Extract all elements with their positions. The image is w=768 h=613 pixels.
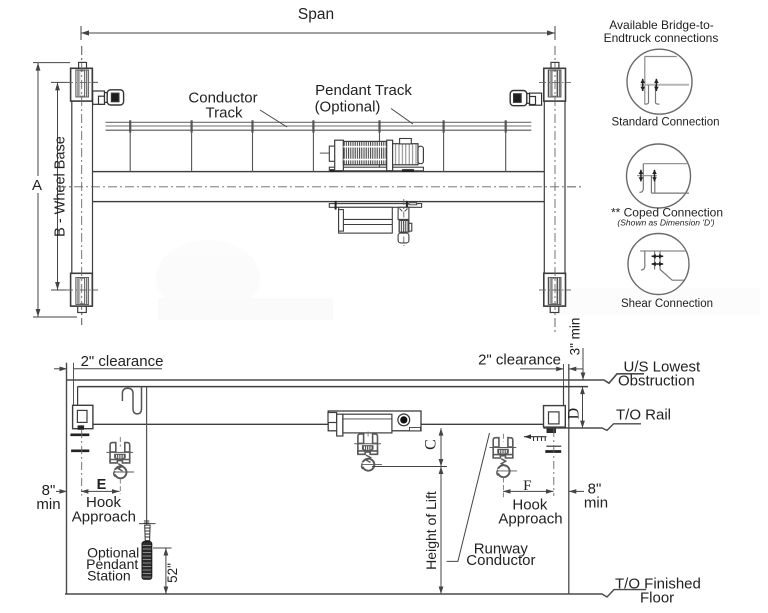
svg-text:Shear Connection: Shear Connection (621, 298, 713, 310)
svg-text:Track: Track (206, 105, 243, 122)
svg-text:min: min (36, 496, 60, 513)
svg-text:2" clearance: 2" clearance (478, 352, 561, 369)
svg-text:F: F (523, 478, 531, 494)
svg-text:Station: Station (87, 568, 131, 584)
svg-text:Endtruck connections: Endtruck connections (604, 31, 719, 45)
svg-text:(Optional): (Optional) (315, 99, 381, 116)
svg-text:T/O Rail: T/O Rail (616, 407, 671, 424)
svg-text:Available Bridge-to-: Available Bridge-to- (609, 18, 714, 32)
svg-text:3" min: 3" min (568, 318, 583, 356)
svg-text:min: min (584, 495, 608, 512)
svg-text:(Shown as Dimension 'D'): (Shown as Dimension 'D') (617, 218, 714, 228)
svg-text:2" clearance: 2" clearance (81, 353, 164, 370)
svg-text:Pendant Track: Pendant Track (315, 82, 412, 99)
svg-text:52": 52" (165, 563, 180, 583)
svg-text:A: A (32, 177, 42, 194)
svg-text:Height of Lift: Height of Lift (423, 491, 439, 570)
svg-text:Obstruction: Obstruction (618, 373, 695, 390)
svg-text:C: C (423, 439, 440, 450)
svg-text:Approach: Approach (498, 511, 562, 528)
svg-text:Floor: Floor (640, 590, 674, 607)
svg-text:Conductor: Conductor (466, 552, 535, 569)
svg-text:Span: Span (298, 6, 334, 23)
svg-text:D: D (566, 408, 583, 420)
svg-text:Approach: Approach (72, 509, 136, 526)
svg-text:E: E (97, 477, 107, 493)
svg-text:Standard Connection: Standard Connection (611, 117, 719, 129)
